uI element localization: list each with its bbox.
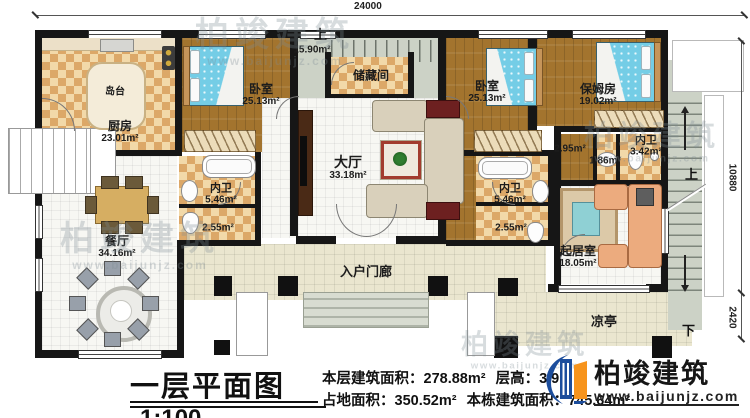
plant-icon bbox=[393, 152, 407, 166]
hall-side-table bbox=[426, 202, 460, 220]
round-chair bbox=[142, 296, 159, 311]
floor-plan-page: 24000 10880 2420 上 上 下 厨房23.01m² 岛台 卧室25… bbox=[0, 0, 750, 418]
bed-pillow bbox=[641, 46, 651, 70]
right-stair-down-label: 下 bbox=[682, 320, 695, 339]
washbasin-icon bbox=[532, 180, 549, 203]
porch-column bbox=[428, 276, 448, 296]
room-label-bedroom2: 卧室25.13m² bbox=[468, 80, 505, 104]
room-label-dining: 餐厅34.16m² bbox=[98, 235, 135, 259]
bathtub-icon bbox=[478, 157, 532, 179]
stove-icon bbox=[162, 46, 175, 70]
dim-right-label: 10880 bbox=[726, 162, 737, 194]
room-label-living: 起居室18.05m² bbox=[559, 245, 596, 269]
round-table-center bbox=[110, 300, 132, 322]
room-label-pavilion: 凉亭 bbox=[591, 315, 617, 329]
plan-title-block: 一层平面图1:100 bbox=[130, 363, 320, 403]
wall-dining-right bbox=[177, 240, 184, 358]
bed-headboard bbox=[536, 48, 543, 106]
room-label-hall: 大厅33.18m² bbox=[329, 155, 366, 181]
window-bedroom1 bbox=[198, 30, 266, 39]
dining-rect-table bbox=[95, 186, 149, 224]
dining-chair bbox=[85, 196, 97, 214]
window-dining-bottom bbox=[78, 350, 162, 359]
tv-icon bbox=[300, 136, 307, 186]
bed-pillow bbox=[641, 74, 651, 98]
dim-line-top bbox=[35, 15, 745, 16]
right-stair-railing bbox=[704, 95, 724, 297]
title-underline2 bbox=[130, 406, 326, 408]
bed-pillow bbox=[190, 78, 200, 102]
page-title: 一层平面图 bbox=[130, 371, 285, 403]
stair-arrow-head bbox=[681, 106, 689, 113]
porch-platform-left bbox=[236, 292, 268, 356]
top-right-terrace bbox=[672, 40, 744, 92]
wall-hall-bottom-l bbox=[296, 236, 336, 244]
brand-name: 柏竣建筑 bbox=[594, 352, 710, 391]
window-dining-left1 bbox=[35, 205, 43, 239]
living-side-table bbox=[636, 188, 654, 206]
bathtub-icon bbox=[202, 155, 256, 178]
wall-bath1-bottom bbox=[179, 240, 261, 246]
porch-column bbox=[278, 276, 298, 296]
bed-pillow bbox=[524, 52, 534, 75]
wardrobe-bedroom1 bbox=[184, 130, 256, 152]
dining-chair bbox=[147, 196, 159, 214]
title-underline bbox=[130, 401, 318, 403]
hall-sofa-right bbox=[424, 118, 464, 204]
brand-logo-icon bbox=[542, 351, 592, 405]
room-label-porch: 入户门廊 bbox=[340, 265, 392, 279]
porch-column bbox=[214, 340, 230, 355]
dim-top-label: 24000 bbox=[352, 1, 384, 12]
living-sofa-bottom bbox=[598, 244, 628, 268]
room-label-nanny: 保姆房19.02m² bbox=[579, 83, 616, 107]
room-label-bedroom1: 卧室25.13m² bbox=[242, 83, 279, 107]
window-living bbox=[558, 285, 650, 293]
room-label-bath1-wc: 2.55m² bbox=[202, 223, 234, 234]
window-nanny bbox=[572, 30, 646, 39]
room-label-nanny-basin: 1.86m² bbox=[589, 156, 621, 167]
room-label-island: 岛台 bbox=[105, 87, 125, 98]
wall-left bbox=[35, 30, 42, 358]
stat-footprint: 占地面积：350.52m² bbox=[322, 393, 457, 409]
wall-kitchen-right bbox=[175, 30, 182, 156]
room-label-nanny-hall: 2.95m² bbox=[554, 144, 586, 155]
dining-chair bbox=[125, 176, 143, 189]
room-label-stair-area: 15.90m² bbox=[293, 45, 330, 56]
kitchen-sink bbox=[100, 39, 134, 52]
round-chair bbox=[69, 296, 86, 311]
porch-steps bbox=[303, 292, 429, 328]
room-label-bath1: 内卫5.46m² bbox=[205, 182, 237, 205]
wardrobe-nanny bbox=[594, 110, 664, 128]
wall-hall-bottom-r bbox=[396, 236, 446, 244]
bed-pillow bbox=[524, 79, 534, 102]
room-label-nanny-bath: 内卫3.42m² bbox=[630, 134, 662, 157]
right-stair-up-label: 上 bbox=[685, 164, 698, 183]
room-label-kitchen: 厨房23.01m² bbox=[101, 120, 138, 144]
room-label-bath2: 内卫5.46m² bbox=[494, 182, 526, 205]
round-chair bbox=[104, 261, 121, 276]
window-dining-left2 bbox=[35, 258, 43, 292]
porch-platform-right bbox=[467, 292, 495, 356]
wall-storage-left bbox=[325, 52, 331, 96]
wardrobe-bedroom2 bbox=[474, 130, 542, 152]
brand-url: www.baijunjz.com bbox=[594, 388, 739, 406]
left-stair bbox=[8, 128, 92, 194]
stair-arrow bbox=[684, 255, 686, 289]
room-label-storage: 储藏间 bbox=[353, 69, 389, 82]
window-bedroom2 bbox=[478, 30, 548, 39]
hall-sofa-top bbox=[372, 100, 428, 132]
dining-chair bbox=[125, 221, 143, 234]
wall-storage-right bbox=[408, 52, 414, 96]
dim-right-lower-label: 2420 bbox=[727, 304, 738, 330]
wall-storage-bottom bbox=[325, 94, 414, 98]
porch-column bbox=[214, 276, 232, 296]
porch-column bbox=[498, 278, 518, 296]
pavilion-column bbox=[494, 336, 518, 358]
dining-chair bbox=[101, 176, 119, 189]
bed-headboard bbox=[654, 42, 661, 102]
washbasin-icon bbox=[181, 180, 198, 202]
stair-arrow-head bbox=[681, 285, 689, 292]
stair-top-up-label: 上 bbox=[314, 24, 327, 43]
stair-arrow bbox=[684, 110, 686, 150]
bed-pillow bbox=[190, 50, 200, 74]
room-label-bath2-wc: 2.55m² bbox=[495, 223, 527, 234]
round-chair bbox=[104, 332, 121, 347]
stat-floor-area: 本层建筑面积：278.88m² bbox=[322, 371, 486, 387]
bed-headboard bbox=[183, 46, 190, 106]
dining-chair bbox=[101, 221, 119, 234]
window-living-right bbox=[661, 208, 669, 254]
wall-hall-left bbox=[290, 30, 298, 236]
living-sofa-top bbox=[594, 184, 628, 210]
